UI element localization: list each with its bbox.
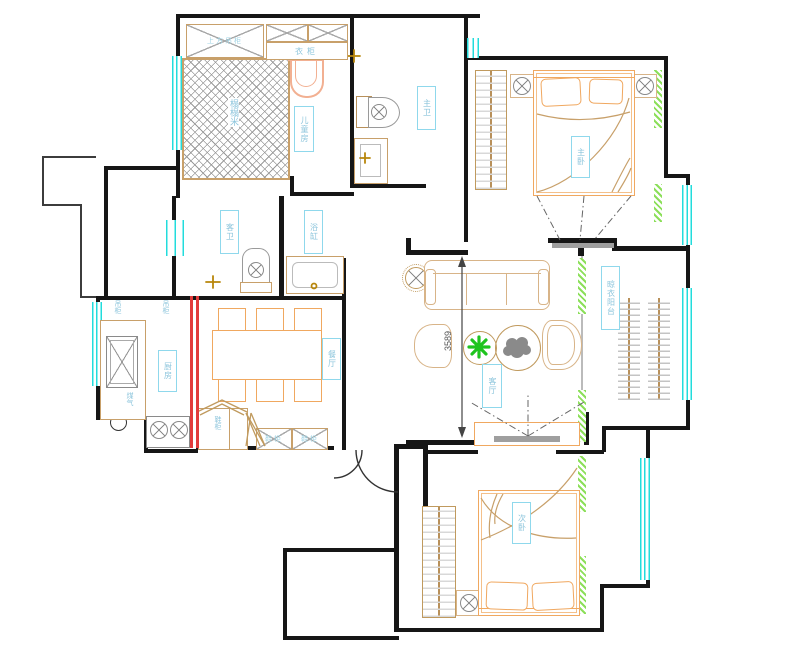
- sliding-door-red: [196, 296, 199, 448]
- sliding-door-red: [190, 296, 193, 448]
- gas-meter-label: 煤气: [126, 392, 133, 406]
- hanging-cabinet-label: 吊柜: [162, 300, 169, 314]
- plant-icon: [469, 337, 489, 357]
- master-bath-label: 主卫: [417, 86, 436, 130]
- drying-balcony-label: 晾衣阳台: [601, 266, 620, 330]
- entry-cabinet-label: 鞋柜: [214, 416, 221, 430]
- secondary-bedroom-label: 次卧: [512, 502, 531, 544]
- tatami-label: 榻榻米: [228, 98, 239, 127]
- dimension-line: [458, 256, 466, 438]
- wardrobe-label: 衣柜: [266, 42, 348, 60]
- dimension-text: 3589: [443, 331, 453, 351]
- master-bed-sightlines: [537, 196, 631, 240]
- bathtub-label: 浴缸: [304, 210, 323, 254]
- annotations-overlay: [0, 0, 800, 653]
- master-bedroom-label: 主卧: [571, 136, 590, 178]
- living-room-label: 客厅: [482, 364, 502, 408]
- kitchen-label: 厨房: [158, 350, 177, 392]
- entrance-door-swing: [334, 450, 398, 492]
- children-room-label: 儿童房: [294, 106, 314, 152]
- guest-bath-label: 客卫: [220, 210, 239, 254]
- entry-cabinet-top-lines: [197, 400, 265, 446]
- floor-plan: 上方吊柜 衣柜 榻榻米 儿童房 主卫 主卧 晾衣阳台: [0, 0, 800, 653]
- decor-plant-icon: [503, 337, 531, 358]
- hanging-cabinet-label: 吊柜: [114, 300, 121, 314]
- dining-room-label: 餐厅: [322, 338, 341, 380]
